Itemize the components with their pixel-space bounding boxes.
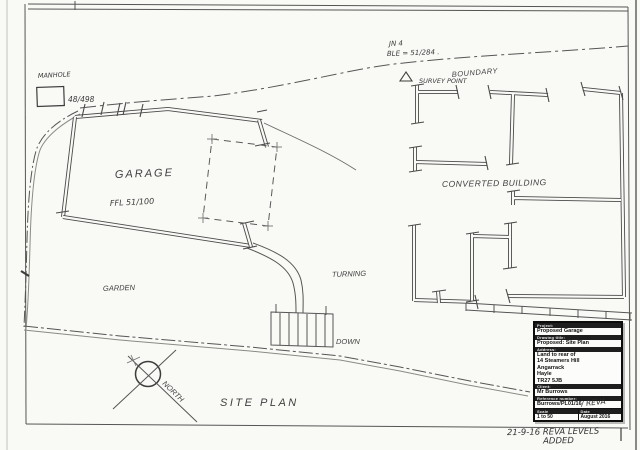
title-block: Project: Proposed Garage Drawing title: … (533, 321, 623, 422)
client-value: Mr Burrows (535, 389, 621, 396)
down-label: DOWN (336, 337, 360, 346)
north-symbol (113, 350, 197, 422)
turning-label: TURNING (332, 269, 367, 279)
reference-handwritten-rev: / REVA (581, 398, 606, 408)
converted-building-walls (408, 82, 624, 309)
proposed-garage-dashed-outline (198, 134, 282, 231)
site-plan-label: SITE PLAN (220, 397, 299, 409)
manhole-ref-label: 48/498 (68, 95, 95, 104)
driveway-edge-line (264, 123, 356, 170)
retaining-wall (466, 303, 632, 321)
scale-cell: Scale 1 to 50 (535, 409, 578, 421)
survey-point-label: SURVEY POINT (419, 77, 468, 85)
boundary-line-bottom (24, 326, 530, 396)
reference-number: Burrows/PL01/16 (537, 401, 582, 407)
survey-point-icon (400, 72, 412, 81)
site-plan-sheet: MANHOLE 48/498 JN 4 BLE = 51/284 . BOUND… (0, 0, 640, 450)
boundary-line-top (80, 46, 628, 108)
level-note-label: BLE = 51/284 . (387, 48, 440, 58)
project-value: Proposed Garage (535, 328, 621, 335)
garden-label: GARDEN (103, 283, 136, 293)
access-path (247, 243, 303, 313)
manhole-label: MANHOLE (38, 70, 72, 80)
scale-value: 1 to 50 (535, 414, 578, 421)
revision-note: 21-9-16 REVA LEVELS ADDED (507, 427, 640, 447)
converted-building-label: CONVERTED BUILDING (442, 177, 547, 189)
reference-value: Burrows/PL01/16 / REVA (535, 401, 621, 408)
ffl-label: FFL 51/100 (110, 197, 155, 208)
garage-label: GARAGE (115, 167, 174, 181)
north-label: NORTH (161, 379, 187, 404)
date-value: August 2016 (579, 414, 622, 421)
manhole-symbol (37, 87, 65, 107)
junction-label: JN 4 (387, 40, 403, 49)
date-cell: Date August 2016 (578, 409, 622, 421)
drawing-title-value: Proposed: Site Plan (535, 340, 621, 347)
steps (271, 304, 333, 347)
